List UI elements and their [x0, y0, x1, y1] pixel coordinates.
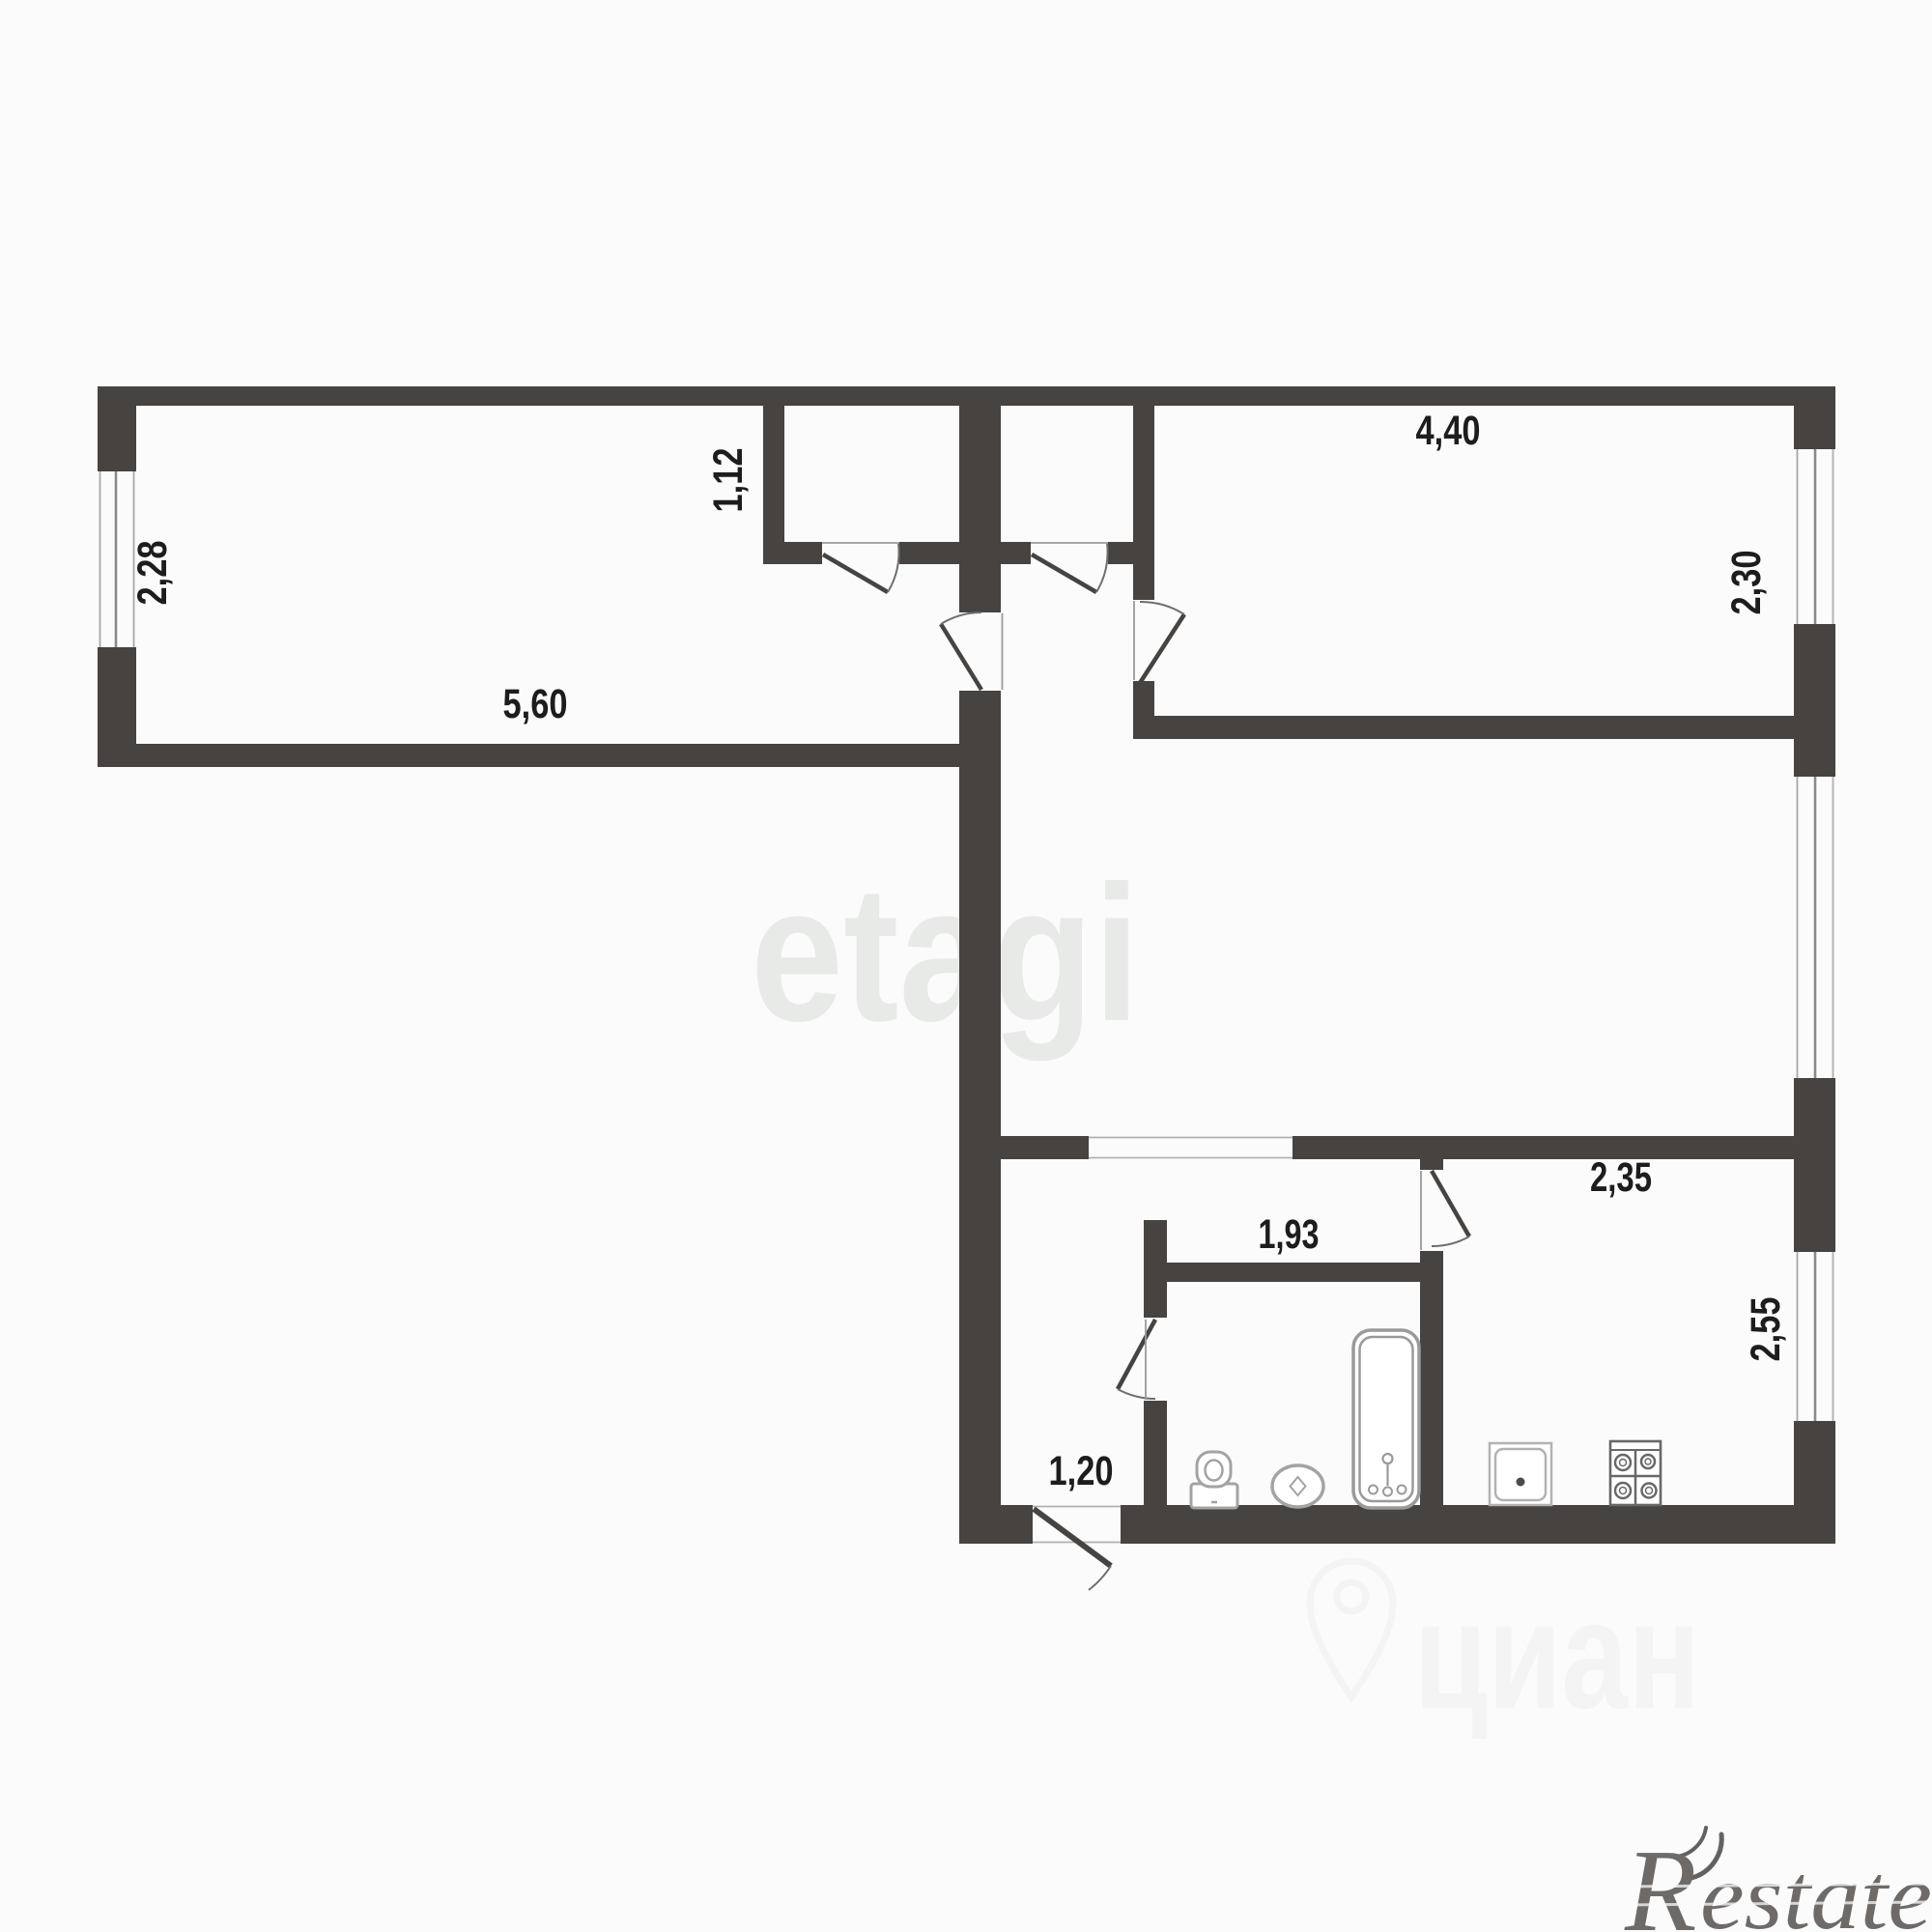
svg-text:R: R — [1624, 1826, 1697, 1932]
svg-text:2,55: 2,55 — [1743, 1297, 1789, 1362]
svg-text:estate: estate — [1700, 1845, 1932, 1932]
svg-text:1,20: 1,20 — [1049, 1448, 1114, 1494]
svg-text:4,40: 4,40 — [1416, 408, 1481, 454]
svg-text:2,35: 2,35 — [1590, 1154, 1652, 1201]
svg-text:1,93: 1,93 — [1259, 1211, 1320, 1258]
svg-text:1,12: 1,12 — [705, 448, 752, 513]
svg-text:2,30: 2,30 — [1723, 551, 1770, 615]
svg-text:etagi: etagi — [751, 846, 1140, 1062]
svg-text:2,28: 2,28 — [129, 541, 176, 606]
svg-text:циан: циан — [1414, 1568, 1700, 1741]
svg-text:5,60: 5,60 — [503, 681, 568, 727]
